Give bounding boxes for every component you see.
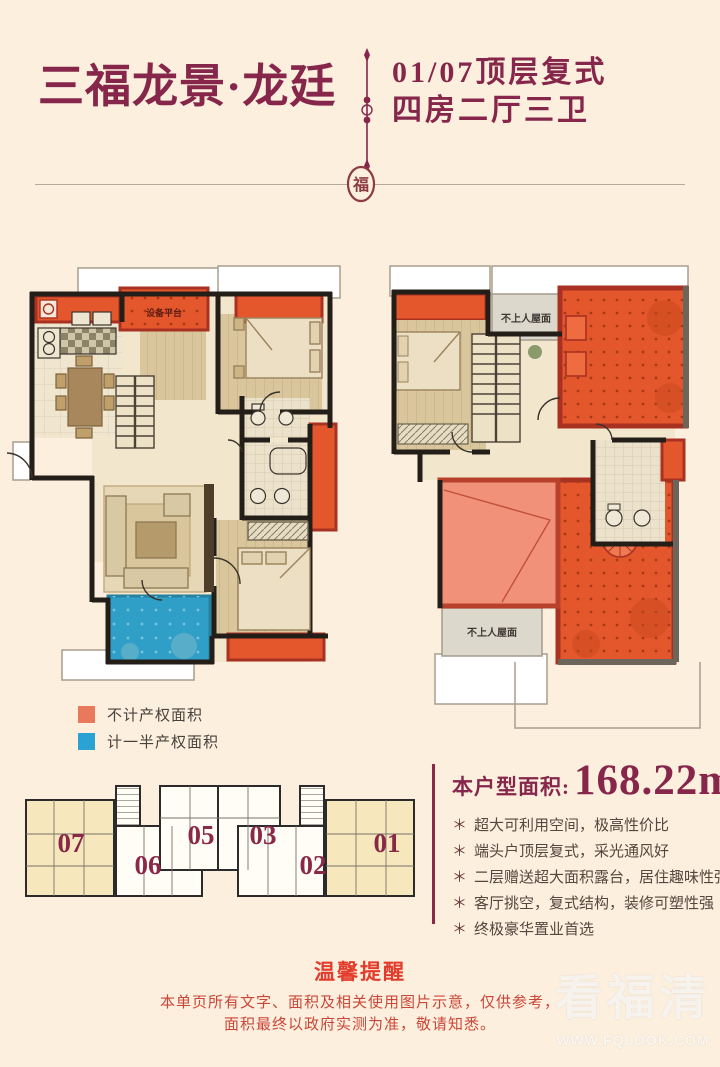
stairs-level1 (116, 376, 154, 448)
unit-number-02: 02 (300, 850, 327, 880)
selling-point-text: 二层赠送超大面积露台，居住趣味性强 (474, 869, 720, 886)
selling-point-text: 超大可利用空间，极高性价比 (474, 817, 669, 834)
unit-number-06: 06 (135, 850, 162, 880)
tv-wall (204, 484, 214, 592)
seal-glyph: 福 (352, 175, 369, 194)
floorplan-level1: 设备平台 (12, 256, 348, 690)
equipment-platform-label: 设备平台 (146, 307, 182, 318)
plant-icon (528, 345, 542, 359)
unit-number-07: 07 (58, 828, 85, 858)
title-divider-ornament (352, 48, 382, 173)
selling-point: ＊客厅挑空，复式结构，装修可塑性强 (452, 891, 714, 917)
roof-label-top: 不上人屋面 (501, 312, 551, 325)
bullet-marker: ＊ (452, 870, 467, 886)
legend-item-no-property: 不计产权面积 (78, 705, 219, 723)
area-label: 本户型面积: (452, 775, 570, 799)
bullet-marker: ＊ (452, 922, 467, 938)
void-area (440, 480, 558, 606)
seal-icon: 福 (345, 163, 377, 205)
bullet-marker: ＊ (452, 844, 467, 860)
floorplan-level2: 不上人屋面 不上人屋面 (380, 258, 710, 734)
selling-point: ＊超大可利用空间，极高性价比 (452, 813, 714, 839)
terrace-top (560, 288, 686, 426)
bullet-marker: ＊ (452, 896, 467, 912)
info-block: 本户型面积: 168.22m2 ＊超大可利用空间，极高性价比 ＊端头户顶层复式，… (452, 756, 714, 943)
unit-number-03: 03 (250, 820, 277, 850)
stairs-level2 (472, 334, 520, 442)
selling-point-text: 终极豪华置业首选 (474, 921, 594, 938)
selling-point: ＊终极豪华置业首选 (452, 917, 714, 943)
unit-number-01: 01 (374, 828, 401, 858)
washer-icon (40, 300, 57, 318)
notice: 温馨提醒 本单页所有文字、面积及相关使用图片示意，仅供参考， 面积最终以政府实测… (0, 956, 720, 1036)
selling-points-list: ＊超大可利用空间，极高性价比 ＊端头户顶层复式，采光通风好 ＊二层赠送超大面积露… (452, 813, 714, 943)
project-title: 三福龙景·龙廷 (38, 50, 336, 116)
legend: 不计产权面积 计一半产权面积 (78, 705, 219, 759)
notice-body: 本单页所有文字、面积及相关使用图片示意，仅供参考， 面积最终以政府实测为准，敬请… (0, 992, 720, 1036)
bullet-marker: ＊ (452, 818, 467, 834)
selling-point: ＊端头户顶层复式，采光通风好 (452, 839, 714, 865)
unit-number-05: 05 (188, 820, 215, 850)
selling-point-text: 端头户顶层复式，采光通风好 (474, 843, 669, 860)
notice-title: 温馨提醒 (0, 956, 720, 986)
bed-top-right (234, 318, 322, 378)
roof-label-bottom: 不上人屋面 (467, 626, 517, 639)
legend-item-half-property: 计一半产权面积 (78, 732, 219, 750)
info-divider-line (432, 764, 435, 924)
notice-line-1: 本单页所有文字、面积及相关使用图片示意，仅供参考， (0, 992, 720, 1014)
flyer-page: 三福龙景·龙廷 01/07顶层复式 四房二厅三卫 福 (0, 0, 720, 1067)
unit-area: 本户型面积: 168.22m2 (452, 756, 714, 805)
legend-label: 计一半产权面积 (107, 731, 219, 752)
blue-balcony (108, 596, 210, 662)
selling-point: ＊二层赠送超大面积露台，居住趣味性强 (452, 865, 714, 891)
subtitle-line-1: 01/07顶层复式 (392, 54, 607, 92)
selling-point-text: 客厅挑空，复式结构，装修可塑性强 (474, 895, 714, 912)
building-keyplan: 07 06 05 03 02 01 (20, 770, 420, 900)
notice-line-2: 面积最终以政府实测为准，敬请知悉。 (0, 1014, 720, 1036)
bed-bottom-right (238, 522, 310, 630)
area-value: 168.22m (574, 757, 720, 804)
legend-label: 不计产权面积 (107, 704, 203, 725)
unit-type-subtitle: 01/07顶层复式 四房二厅三卫 (392, 54, 607, 130)
subtitle-line-2: 四房二厅三卫 (392, 92, 607, 130)
legend-swatch-blue (78, 733, 95, 750)
legend-swatch-orange (78, 706, 95, 723)
